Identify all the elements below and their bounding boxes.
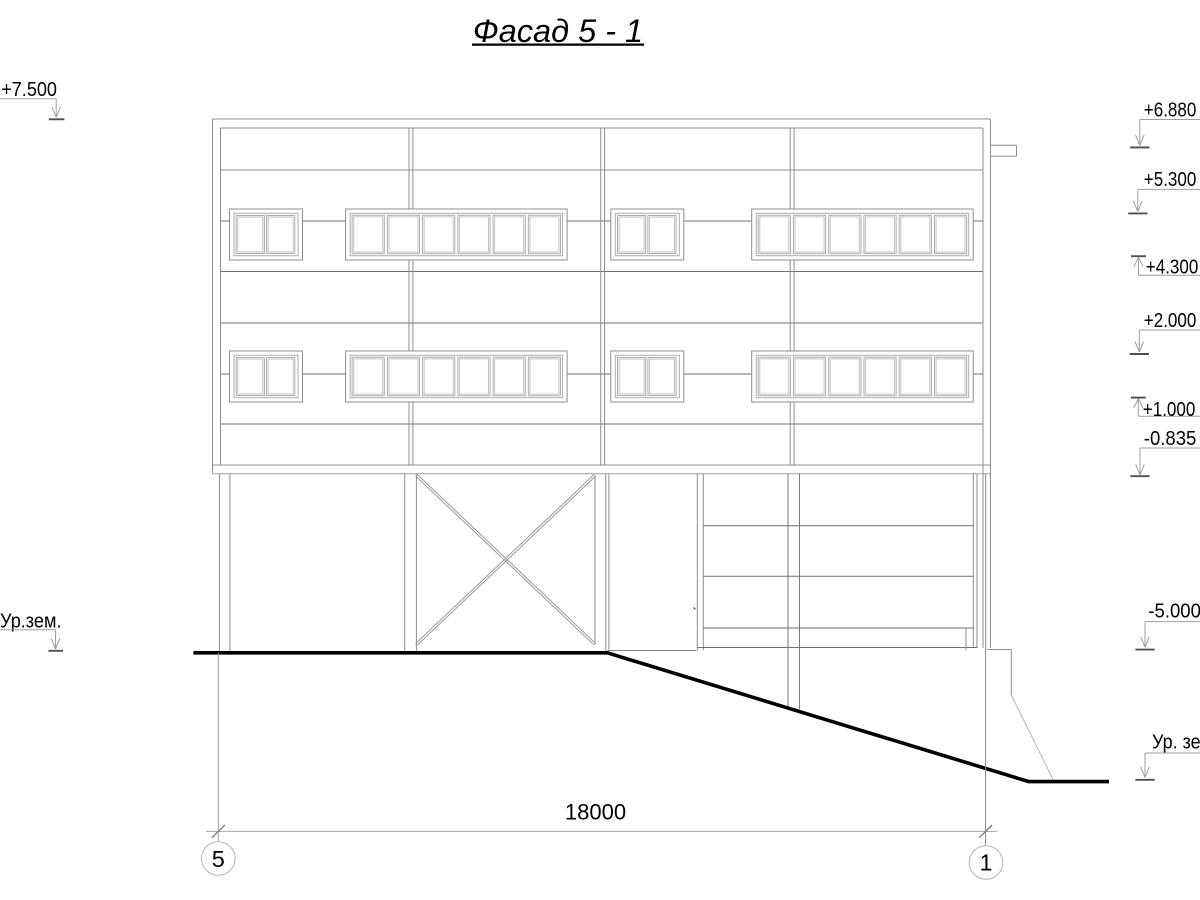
svg-text:1: 1 xyxy=(980,850,993,876)
svg-text:5: 5 xyxy=(212,846,225,872)
svg-text:Ур.зем.: Ур.зем. xyxy=(0,610,62,632)
svg-text:+5.300: +5.300 xyxy=(1144,169,1197,191)
svg-text:+1.000: +1.000 xyxy=(1143,399,1196,421)
svg-text:-0.835: -0.835 xyxy=(1144,428,1197,450)
svg-text:-5.000: -5.000 xyxy=(1148,600,1200,622)
svg-text:Ур. зем.: Ур. зем. xyxy=(1152,732,1200,754)
svg-text:18000: 18000 xyxy=(565,800,626,825)
svg-text:+6.880: +6.880 xyxy=(1144,99,1197,121)
svg-text:+4.300: +4.300 xyxy=(1146,256,1199,278)
svg-text:+7.500: +7.500 xyxy=(1,79,57,101)
svg-text:+2.000: +2.000 xyxy=(1144,310,1197,332)
